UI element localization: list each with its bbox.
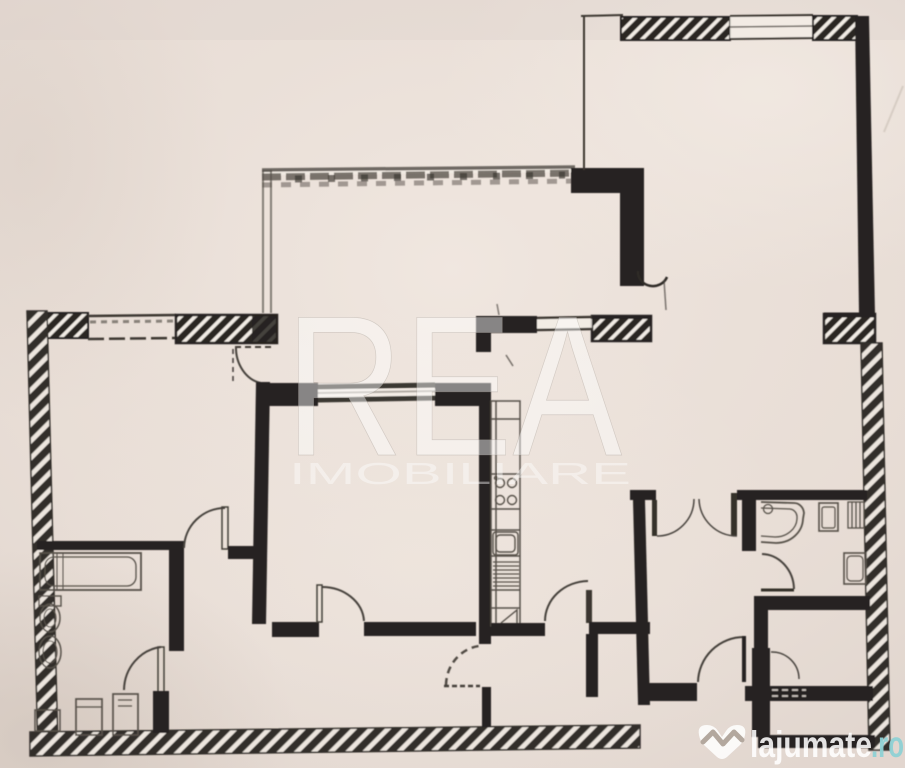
svg-text:.ro: .ro — [871, 724, 904, 765]
svg-text:lajumate: lajumate — [750, 724, 872, 765]
svg-text:IMOBILIARE: IMOBILIARE — [289, 456, 631, 491]
